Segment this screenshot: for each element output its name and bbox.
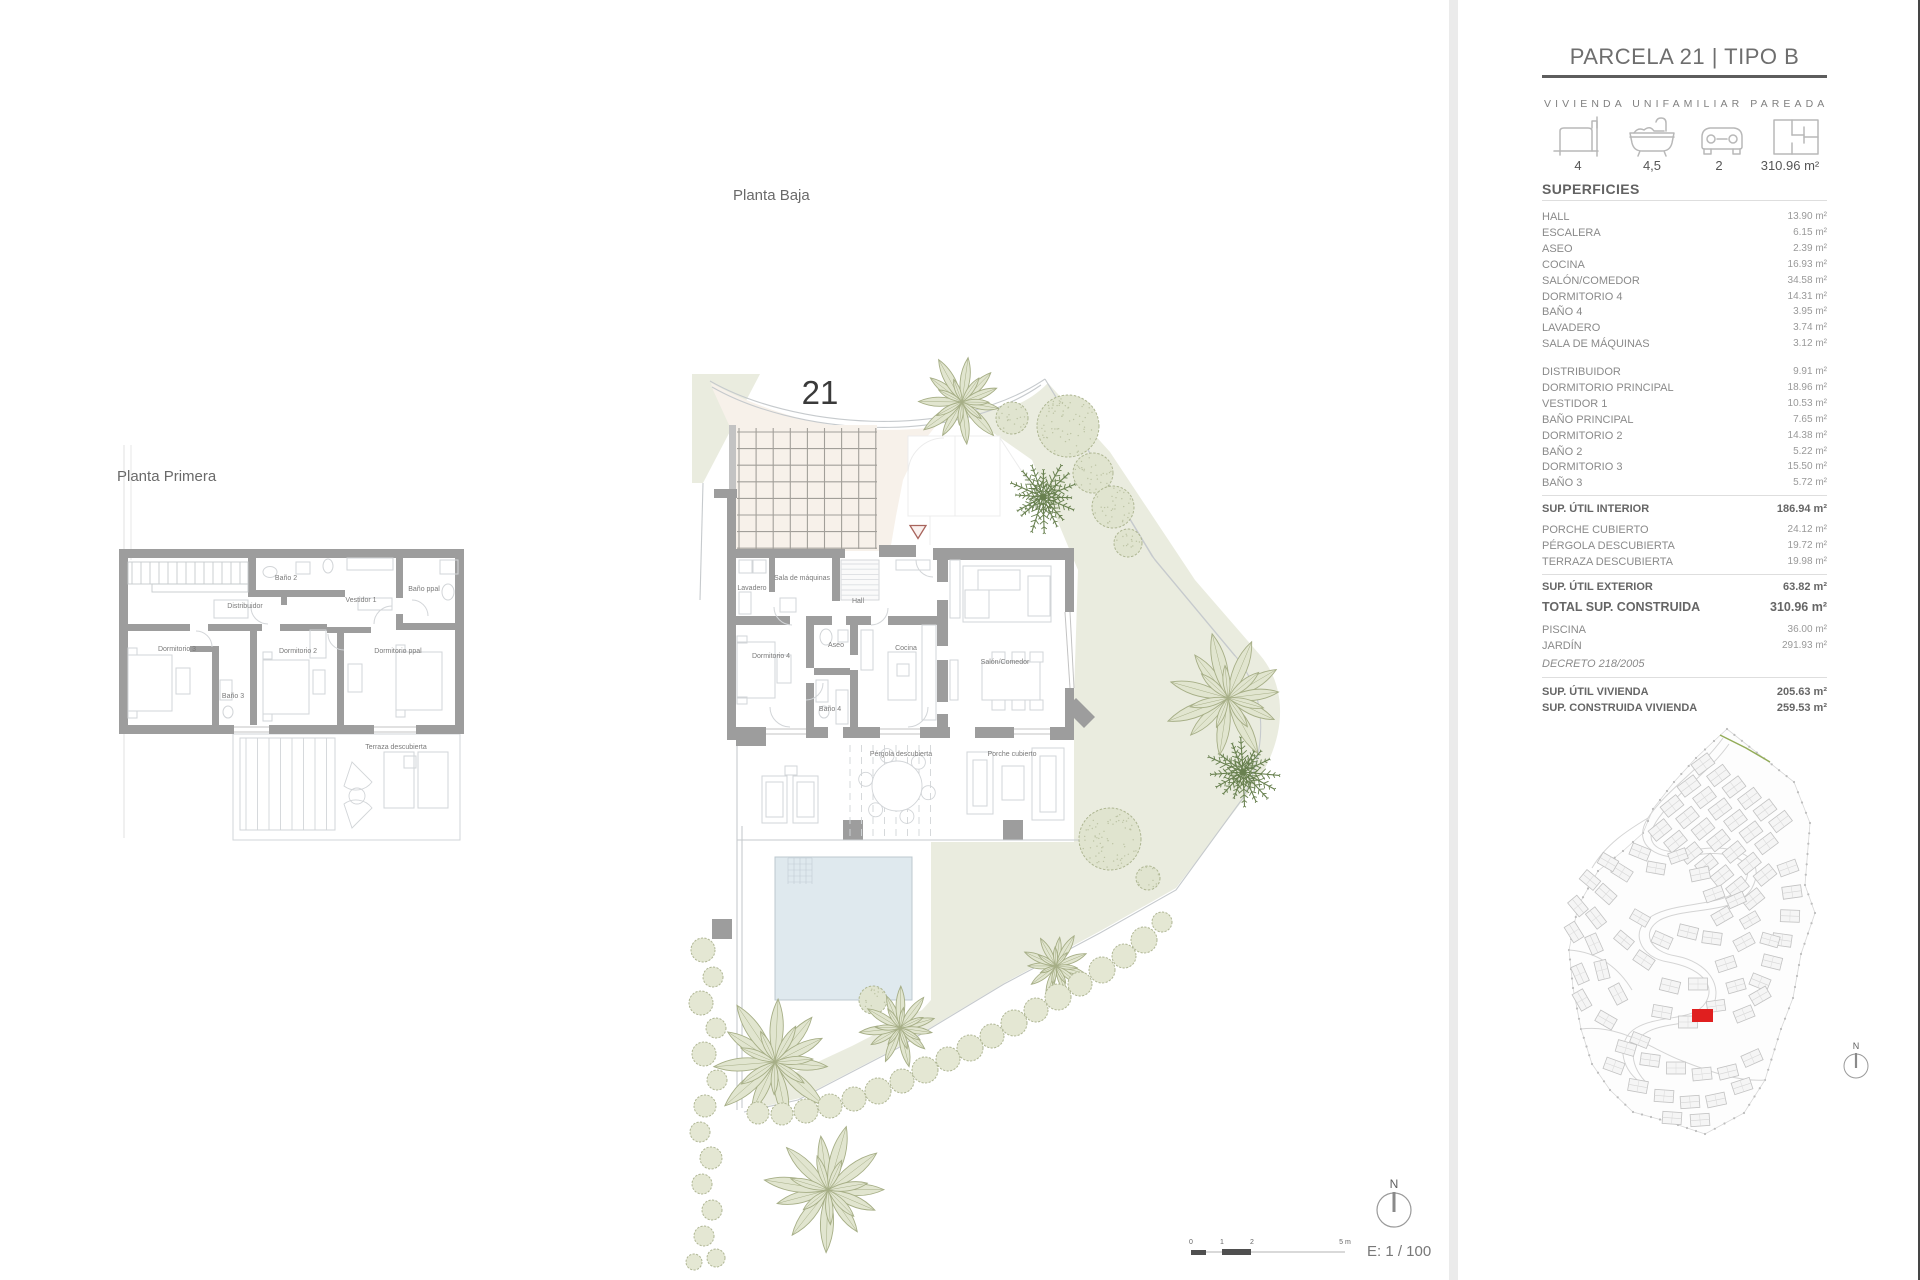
svg-text:5 m: 5 m: [1339, 1239, 1351, 1246]
svg-text:N: N: [1390, 1177, 1399, 1191]
svg-text:2: 2: [1250, 1239, 1254, 1246]
svg-text:Sala de máquinas: Sala de máquinas: [774, 575, 831, 582]
svg-text:Hall: Hall: [852, 598, 865, 605]
svg-text:Baño 4: Baño 4: [819, 706, 841, 713]
svg-text:Dormitorio 2: Dormitorio 2: [279, 648, 317, 655]
svg-text:1: 1: [1220, 1239, 1224, 1246]
svg-text:E: 1 / 100: E: 1 / 100: [1367, 1243, 1431, 1260]
svg-text:Vestidor 1: Vestidor 1: [345, 597, 376, 604]
svg-text:Planta Primera: Planta Primera: [117, 468, 217, 485]
svg-text:Porche cubierto: Porche cubierto: [987, 751, 1036, 758]
svg-text:Pérgola descubierta: Pérgola descubierta: [870, 751, 932, 758]
svg-text:Dormitorio 4: Dormitorio 4: [752, 653, 790, 660]
svg-text:Planta Baja: Planta Baja: [733, 187, 810, 204]
svg-text:Distribuidor: Distribuidor: [227, 603, 263, 610]
svg-text:Cocina: Cocina: [895, 645, 917, 652]
svg-text:Lavadero: Lavadero: [737, 585, 766, 592]
svg-text:Aseo: Aseo: [828, 642, 844, 649]
svg-text:N: N: [1853, 1041, 1860, 1051]
svg-text:Dormitorio 3: Dormitorio 3: [158, 646, 196, 653]
svg-text:Dormitorio ppal: Dormitorio ppal: [374, 648, 422, 655]
svg-text:21: 21: [802, 374, 839, 411]
svg-text:0: 0: [1189, 1239, 1193, 1246]
svg-text:Baño ppal: Baño ppal: [408, 586, 440, 593]
svg-text:Baño 2: Baño 2: [275, 575, 297, 582]
svg-text:Salón/Comedor: Salón/Comedor: [981, 659, 1030, 666]
svg-text:Terraza descubierta: Terraza descubierta: [365, 744, 427, 751]
svg-text:Baño 3: Baño 3: [222, 693, 244, 700]
